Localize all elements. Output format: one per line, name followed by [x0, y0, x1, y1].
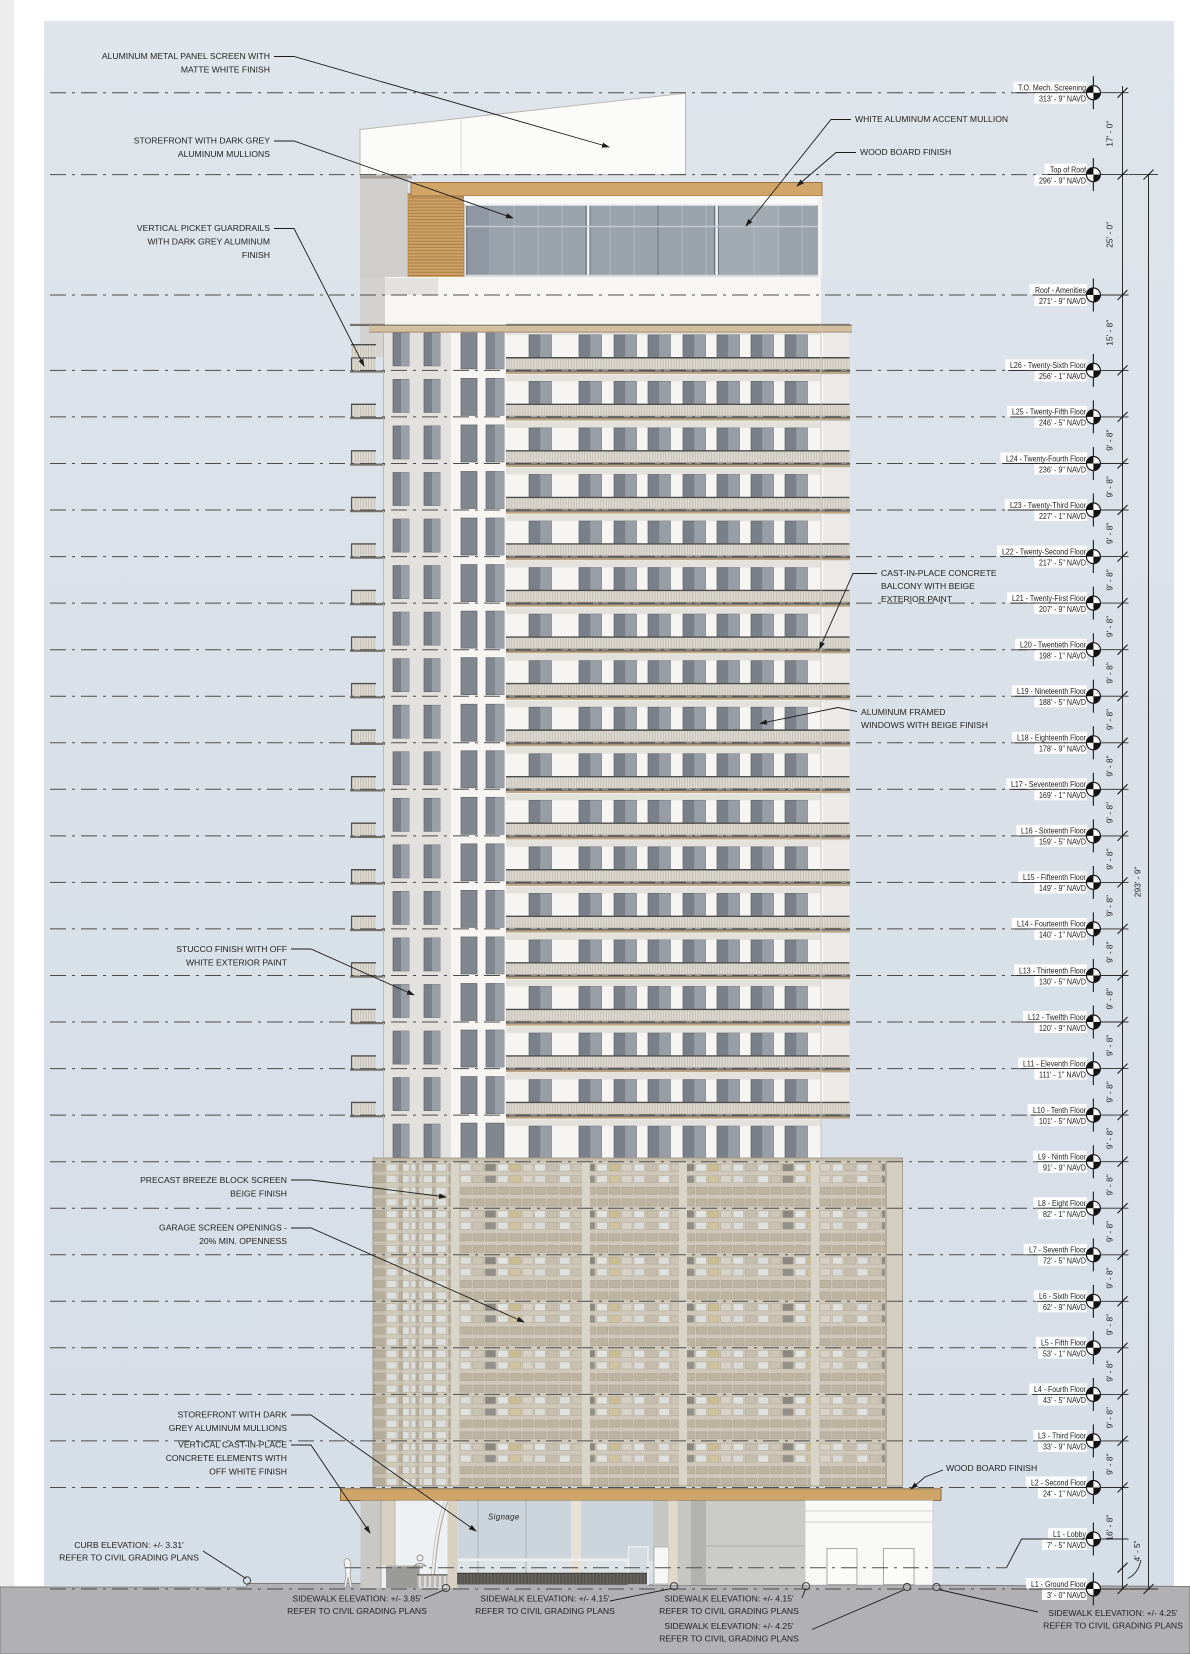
svg-text:L18 - Eighteenth Floor: L18 - Eighteenth Floor: [1017, 734, 1086, 743]
svg-text:GREY ALUMINUM MULLIONS: GREY ALUMINUM MULLIONS: [169, 1423, 288, 1433]
svg-text:L26 - Twenty-Sixth Floor: L26 - Twenty-Sixth Floor: [1010, 361, 1086, 370]
svg-text:313' - 9" NAVD: 313' - 9" NAVD: [1039, 95, 1086, 104]
svg-text:ALUMINUM FRAMED: ALUMINUM FRAMED: [861, 707, 946, 717]
svg-text:MATTE WHITE FINISH: MATTE WHITE FINISH: [181, 65, 270, 75]
svg-text:9' - 8": 9' - 8": [1105, 988, 1115, 1009]
svg-text:9' - 8": 9' - 8": [1105, 802, 1115, 823]
svg-text:L11 - Eleventh Floor: L11 - Eleventh Floor: [1023, 1059, 1086, 1068]
svg-text:91' - 9" NAVD: 91' - 9" NAVD: [1043, 1164, 1086, 1173]
svg-text:9' - 8": 9' - 8": [1105, 616, 1115, 637]
svg-text:9' - 8": 9' - 8": [1105, 1221, 1115, 1242]
svg-text:CAST-IN-PLACE CONCRETE: CAST-IN-PLACE CONCRETE: [881, 568, 997, 578]
svg-text:L7 - Seventh Floor: L7 - Seventh Floor: [1029, 1246, 1086, 1255]
svg-text:16' - 8": 16' - 8": [1105, 1515, 1115, 1541]
svg-text:SIDEWALK ELEVATION: +/- 4.15': SIDEWALK ELEVATION: +/- 4.15': [664, 1594, 794, 1604]
svg-text:111' - 1" NAVD: 111' - 1" NAVD: [1039, 1070, 1086, 1079]
svg-text:ALUMINUM METAL PANEL SCREEN WI: ALUMINUM METAL PANEL SCREEN WITH: [102, 51, 270, 61]
svg-text:ALUMINUM MULLIONS: ALUMINUM MULLIONS: [178, 149, 270, 159]
svg-text:9' - 8": 9' - 8": [1105, 662, 1115, 683]
svg-text:OFF WHITE FINISH: OFF WHITE FINISH: [209, 1467, 287, 1477]
svg-text:198' - 1" NAVD: 198' - 1" NAVD: [1039, 652, 1086, 661]
svg-text:Signage: Signage: [488, 1513, 520, 1522]
svg-text:BEIGE FINISH: BEIGE FINISH: [230, 1189, 287, 1199]
svg-text:9' - 8": 9' - 8": [1105, 523, 1115, 544]
svg-text:T.O. Mech. Screening: T.O. Mech. Screening: [1018, 84, 1086, 93]
svg-text:33' - 9" NAVD: 33' - 9" NAVD: [1043, 1443, 1086, 1452]
svg-text:L20 - Twentieth Floor: L20 - Twentieth Floor: [1020, 641, 1086, 650]
svg-text:9' - 8": 9' - 8": [1105, 1128, 1115, 1149]
svg-text:227' - 1" NAVD: 227' - 1" NAVD: [1039, 512, 1086, 521]
svg-text:L17 - Seventeenth Floor: L17 - Seventeenth Floor: [1011, 780, 1086, 789]
svg-text:9' - 8": 9' - 8": [1105, 1360, 1115, 1381]
svg-text:STOREFRONT WITH DARK GREY: STOREFRONT WITH DARK GREY: [134, 136, 271, 146]
svg-text:REFER TO CIVIL GRADING PLANS: REFER TO CIVIL GRADING PLANS: [659, 1606, 799, 1616]
svg-text:149' - 9" NAVD: 149' - 9" NAVD: [1039, 884, 1086, 893]
svg-text:256' - 1" NAVD: 256' - 1" NAVD: [1039, 372, 1086, 381]
svg-text:62' - 9" NAVD: 62' - 9" NAVD: [1043, 1303, 1086, 1312]
svg-text:L8 - Eight Floor: L8 - Eight Floor: [1038, 1199, 1086, 1208]
svg-text:L10 - Tenth Floor: L10 - Tenth Floor: [1033, 1106, 1086, 1115]
svg-text:293' - 9": 293' - 9": [1133, 866, 1143, 897]
svg-text:L21 - Twenty-First Floor: L21 - Twenty-First Floor: [1012, 594, 1086, 603]
svg-text:L15 - Fifteenth Floor: L15 - Fifteenth Floor: [1023, 873, 1086, 882]
svg-text:9' - 8": 9' - 8": [1105, 848, 1115, 869]
svg-text:9' - 8": 9' - 8": [1105, 709, 1115, 730]
svg-text:9' - 8": 9' - 8": [1105, 569, 1115, 590]
svg-text:271' - 9" NAVD: 271' - 9" NAVD: [1039, 297, 1086, 306]
svg-text:9' - 8": 9' - 8": [1105, 1174, 1115, 1195]
svg-text:L14 - Fourteenth Floor: L14 - Fourteenth Floor: [1017, 920, 1086, 929]
svg-text:9' - 8": 9' - 8": [1105, 476, 1115, 497]
svg-text:130' - 5" NAVD: 130' - 5" NAVD: [1039, 977, 1086, 986]
svg-text:159' - 5" NAVD: 159' - 5" NAVD: [1039, 838, 1086, 847]
svg-text:L24 - Twenty-Fourth Floor: L24 - Twenty-Fourth Floor: [1006, 454, 1086, 463]
svg-text:9' - 8": 9' - 8": [1105, 1081, 1115, 1102]
svg-text:20% MIN. OPENNESS: 20% MIN. OPENNESS: [199, 1236, 287, 1246]
svg-text:140' - 1" NAVD: 140' - 1" NAVD: [1039, 931, 1086, 940]
svg-text:CURB ELEVATION: +/- 3.31': CURB ELEVATION: +/- 3.31': [74, 1540, 184, 1550]
svg-text:WHITE EXTERIOR PAINT: WHITE EXTERIOR PAINT: [186, 958, 288, 968]
svg-text:REFER TO CIVIL GRADING PLANS: REFER TO CIVIL GRADING PLANS: [1043, 1621, 1183, 1631]
svg-text:GARAGE SCREEN OPENINGS -: GARAGE SCREEN OPENINGS -: [159, 1223, 287, 1233]
svg-text:43' - 5" NAVD: 43' - 5" NAVD: [1043, 1396, 1086, 1405]
svg-text:Top of Roof: Top of Roof: [1050, 165, 1087, 174]
svg-text:L3 - Third Floor: L3 - Third Floor: [1038, 1432, 1086, 1441]
svg-text:9' - 8": 9' - 8": [1105, 942, 1115, 963]
svg-text:PRECAST BREEZE BLOCK SCREEN: PRECAST BREEZE BLOCK SCREEN: [140, 1175, 287, 1185]
svg-text:WOOD BOARD FINISH: WOOD BOARD FINISH: [860, 147, 951, 157]
svg-text:4' - 5": 4' - 5": [1133, 1540, 1142, 1561]
svg-text:FINISH: FINISH: [242, 250, 270, 260]
svg-text:CONCRETE ELEMENTS WITH: CONCRETE ELEMENTS WITH: [166, 1453, 287, 1463]
svg-text:Roof - Amenities: Roof - Amenities: [1035, 286, 1086, 295]
svg-text:9' - 8": 9' - 8": [1105, 1454, 1115, 1475]
svg-text:169' - 1" NAVD: 169' - 1" NAVD: [1039, 791, 1086, 800]
svg-text:3' - 0" NAVD: 3' - 0" NAVD: [1047, 1591, 1086, 1600]
svg-text:53' - 1" NAVD: 53' - 1" NAVD: [1043, 1350, 1086, 1359]
svg-text:EXTERIOR PAINT: EXTERIOR PAINT: [881, 594, 953, 604]
svg-text:9' - 8": 9' - 8": [1105, 895, 1115, 916]
svg-text:9' - 8": 9' - 8": [1105, 1267, 1115, 1288]
svg-text:WOOD BOARD FINISH: WOOD BOARD FINISH: [946, 1463, 1037, 1473]
svg-text:296' - 9" NAVD: 296' - 9" NAVD: [1039, 176, 1086, 185]
svg-text:SIDEWALK ELEVATION: +/- 4.25': SIDEWALK ELEVATION: +/- 4.25': [1048, 1608, 1178, 1618]
svg-text:9' - 8": 9' - 8": [1105, 1314, 1115, 1335]
svg-text:L22 - Twenty-Second Floor: L22 - Twenty-Second Floor: [1002, 547, 1086, 556]
svg-text:SIDEWALK ELEVATION: +/- 3.85': SIDEWALK ELEVATION: +/- 3.85': [292, 1594, 422, 1604]
svg-text:L4 - Fourth Floor: L4 - Fourth Floor: [1034, 1385, 1086, 1394]
svg-text:L1 - Lobby: L1 - Lobby: [1053, 1530, 1086, 1539]
svg-text:REFER TO CIVIL GRADING PLANS: REFER TO CIVIL GRADING PLANS: [287, 1606, 427, 1616]
svg-text:25' - 0": 25' - 0": [1105, 222, 1115, 248]
svg-text:VERTICAL PICKET GUARDRAILS: VERTICAL PICKET GUARDRAILS: [137, 223, 270, 233]
svg-text:9' - 8": 9' - 8": [1105, 1035, 1115, 1056]
svg-text:L25 - Twenty-Fifth Floor: L25 - Twenty-Fifth Floor: [1012, 408, 1086, 417]
svg-text:L12 - Twelfth Floor: L12 - Twelfth Floor: [1028, 1013, 1086, 1022]
svg-text:STUCCO FINISH WITH OFF: STUCCO FINISH WITH OFF: [176, 944, 287, 954]
svg-text:REFER TO CIVIL GRADING PLANS: REFER TO CIVIL GRADING PLANS: [59, 1553, 199, 1563]
svg-text:72' - 5" NAVD: 72' - 5" NAVD: [1043, 1257, 1086, 1266]
svg-text:82' - 1" NAVD: 82' - 1" NAVD: [1043, 1210, 1086, 1219]
svg-text:L1 - Ground Floor: L1 - Ground Floor: [1031, 1580, 1086, 1589]
svg-text:24' - 1" NAVD: 24' - 1" NAVD: [1043, 1489, 1086, 1498]
svg-text:236' - 9" NAVD: 236' - 9" NAVD: [1039, 465, 1086, 474]
svg-text:L2 - Second Floor: L2 - Second Floor: [1031, 1478, 1086, 1487]
svg-text:REFER TO CIVIL GRADING PLANS: REFER TO CIVIL GRADING PLANS: [659, 1634, 799, 1644]
svg-text:SIDEWALK ELEVATION: +/- 4.15': SIDEWALK ELEVATION: +/- 4.15': [480, 1594, 610, 1604]
svg-text:101' - 5" NAVD: 101' - 5" NAVD: [1039, 1117, 1086, 1126]
svg-text:WITH DARK GREY ALUMINUM: WITH DARK GREY ALUMINUM: [147, 237, 270, 247]
svg-text:WHITE ALUMINUM ACCENT MULLION: WHITE ALUMINUM ACCENT MULLION: [855, 114, 1008, 124]
svg-text:L19 - Nineteenth Floor: L19 - Nineteenth Floor: [1017, 687, 1086, 696]
svg-text:17' - 0": 17' - 0": [1105, 121, 1115, 147]
svg-text:REFER TO CIVIL GRADING PLANS: REFER TO CIVIL GRADING PLANS: [475, 1606, 615, 1616]
svg-text:9' - 8": 9' - 8": [1105, 1407, 1115, 1428]
svg-text:L13 - Thirteenth Floor: L13 - Thirteenth Floor: [1019, 966, 1086, 975]
svg-text:9' - 8": 9' - 8": [1105, 755, 1115, 776]
svg-text:178' - 9" NAVD: 178' - 9" NAVD: [1039, 745, 1086, 754]
svg-text:L5 - Fifth Floor: L5 - Fifth Floor: [1041, 1339, 1086, 1348]
svg-text:VERTICAL CAST-IN-PLACE: VERTICAL CAST-IN-PLACE: [178, 1440, 287, 1450]
svg-text:L6 - Sixth Floor: L6 - Sixth Floor: [1039, 1292, 1086, 1301]
svg-text:WINDOWS WITH BEIGE FINISH: WINDOWS WITH BEIGE FINISH: [861, 720, 988, 730]
svg-text:BALCONY WITH BEIGE: BALCONY WITH BEIGE: [881, 581, 975, 591]
svg-text:217' - 5" NAVD: 217' - 5" NAVD: [1039, 558, 1086, 567]
svg-text:L9 - Ninth Floor: L9 - Ninth Floor: [1038, 1153, 1086, 1162]
svg-text:7' - 5" NAVD: 7' - 5" NAVD: [1047, 1541, 1086, 1550]
svg-text:9' - 8": 9' - 8": [1105, 430, 1115, 451]
svg-text:120' - 9" NAVD: 120' - 9" NAVD: [1039, 1024, 1086, 1033]
svg-text:188' - 5" NAVD: 188' - 5" NAVD: [1039, 698, 1086, 707]
svg-text:207' - 9" NAVD: 207' - 9" NAVD: [1039, 605, 1086, 614]
svg-text:246' - 5" NAVD: 246' - 5" NAVD: [1039, 419, 1086, 428]
svg-text:L23 - Twenty-Third Floor: L23 - Twenty-Third Floor: [1010, 501, 1086, 510]
svg-text:L16 - Sixteenth Floor: L16 - Sixteenth Floor: [1021, 827, 1086, 836]
svg-text:SIDEWALK ELEVATION: +/- 4.25': SIDEWALK ELEVATION: +/- 4.25': [664, 1621, 794, 1631]
svg-text:15' - 8": 15' - 8": [1105, 320, 1115, 346]
svg-text:STOREFRONT WITH DARK: STOREFRONT WITH DARK: [178, 1410, 288, 1420]
